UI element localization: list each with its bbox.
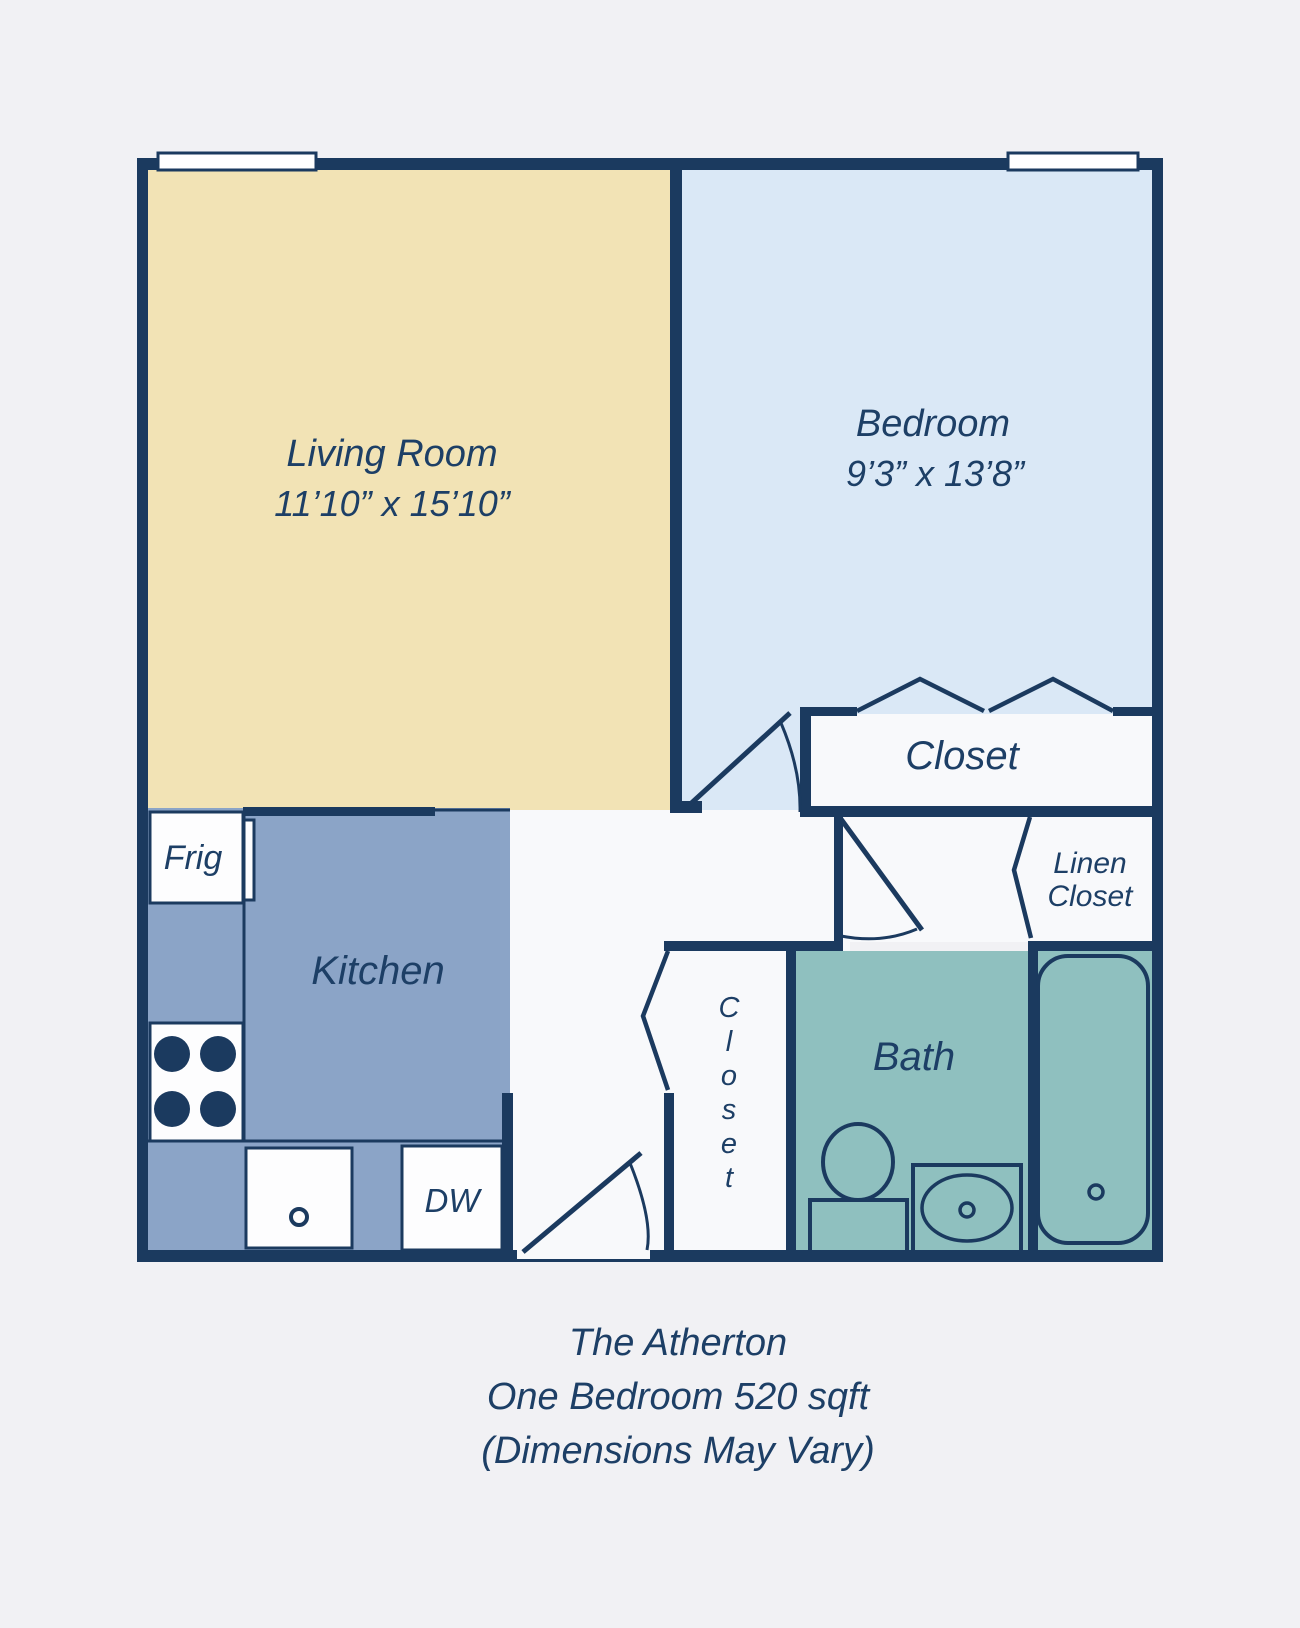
hall-closet-letter: s (722, 1094, 737, 1126)
wall-bath-left (786, 941, 796, 1251)
wall-bedroom-closet-left (800, 707, 811, 817)
window-bedroom (1008, 153, 1138, 170)
kitchen-sink (246, 1148, 352, 1248)
toilet-tank (810, 1200, 907, 1252)
window-living-room (158, 153, 316, 170)
floor-plan: Living Room 11’10” x 15’10” Bedroom 9’3”… (0, 0, 1300, 1628)
wall-bedroom-closet-bottom (800, 806, 1153, 817)
entry-door-opening (517, 1250, 650, 1259)
wall-kitchen-top (243, 807, 435, 816)
wall-right (1152, 158, 1163, 1262)
hall-closet-letter: o (721, 1060, 737, 1092)
kitchen-sink-drain (291, 1209, 307, 1225)
wall-kitchen-right (502, 1093, 513, 1251)
stove-burner (154, 1091, 190, 1127)
caption-subtitle: One Bedroom 520 sqft (487, 1376, 871, 1418)
wall-bedroom-closet-top-right (1113, 707, 1153, 716)
bedroom-label: Bedroom (856, 403, 1010, 445)
bath-sink-drain (960, 1203, 974, 1217)
toilet-bowl (823, 1124, 893, 1200)
hall-closet-letter: e (721, 1128, 737, 1160)
living-room-dimensions: 11’10” x 15’10” (274, 483, 511, 524)
hall-closet-letter: C (719, 992, 741, 1024)
bedroom-dimensions: 9’3” x 13’8” (846, 453, 1026, 494)
dishwasher-label: DW (425, 1182, 483, 1219)
wall-bath-door-jamb (834, 806, 843, 946)
living-room-label: Living Room (286, 433, 497, 475)
linen-closet-label-line1: Linen (1053, 847, 1126, 880)
wall-bedroom-closet-top-left (800, 707, 857, 716)
floor-plan-page: Living Room 11’10” x 15’10” Bedroom 9’3”… (0, 0, 1300, 1628)
wall-hall-closet-left (664, 1093, 674, 1251)
stove-burner (200, 1036, 236, 1072)
bedroom-closet-label: Closet (905, 734, 1020, 778)
caption-title: The Atherton (569, 1322, 787, 1364)
wall-left (137, 158, 148, 1262)
wall-livingroom-bedroom (670, 170, 682, 811)
wall-hall-closet-top (664, 941, 843, 951)
fridge-door (244, 820, 254, 900)
stove-burner (200, 1091, 236, 1127)
stove-burner (154, 1036, 190, 1072)
kitchen-label: Kitchen (311, 949, 444, 993)
linen-closet-label-line2: Closet (1047, 880, 1134, 913)
fridge-label: Frig (164, 839, 223, 877)
caption-disclaimer: (Dimensions May Vary) (481, 1430, 874, 1472)
wall-bath-top-right (1028, 941, 1153, 951)
bathtub-drain (1089, 1185, 1103, 1199)
bath-label: Bath (873, 1035, 955, 1079)
